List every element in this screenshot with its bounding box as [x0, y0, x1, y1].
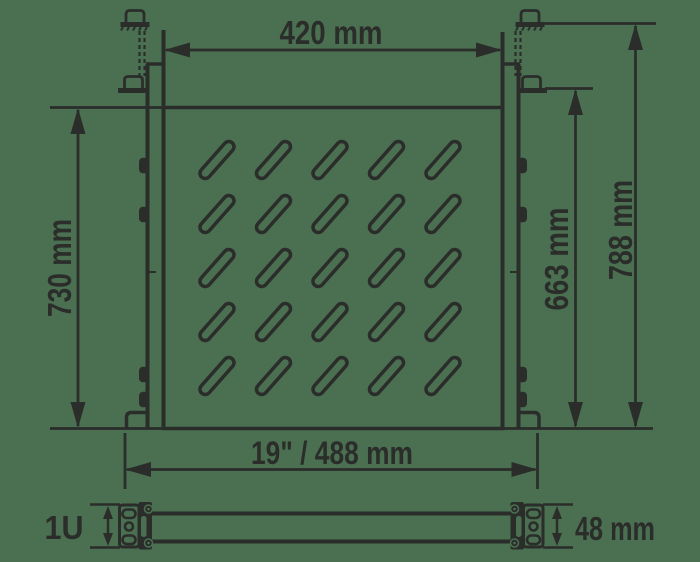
vent-slot	[198, 193, 236, 234]
right-bracket-profile	[524, 505, 544, 547]
vent-slot	[424, 355, 462, 396]
vent-slot	[424, 193, 462, 234]
dimension-label-rack-units: 1U	[45, 509, 84, 546]
bracket-round-hole	[125, 523, 133, 531]
dimension-420: 420 mm	[164, 14, 502, 58]
dimension-1u: 1U	[45, 505, 121, 548]
arrowhead-up-icon	[103, 506, 113, 519]
dimension-label-right-inner-height: 663 mm	[538, 208, 575, 311]
vent-slot	[367, 139, 405, 180]
vent-slot	[254, 301, 292, 342]
vent-slot	[311, 139, 349, 180]
bracket-slot-hole	[527, 510, 540, 519]
vent-slot	[367, 193, 405, 234]
mount-stud	[139, 158, 149, 174]
dimension-730: 730 mm	[41, 108, 86, 428]
vent-slot	[198, 247, 236, 288]
arrowhead-up-icon	[71, 108, 86, 134]
rack-shelf-diagram: 420 mm 730 mm 663 mm 788 mm 19" / 488 mm	[0, 0, 700, 562]
dimension-label-left-height: 730 mm	[41, 219, 78, 317]
vent-slot	[311, 355, 349, 396]
rail-slot	[141, 516, 147, 537]
screw-serration	[121, 27, 147, 31]
screw-flange	[118, 88, 149, 93]
arrowhead-down-icon	[552, 533, 562, 546]
rail-slot	[516, 516, 522, 537]
right-rail-profile	[511, 502, 525, 550]
arrowhead-down-icon	[71, 402, 86, 428]
vent-slot	[311, 193, 349, 234]
vent-slot	[367, 301, 405, 342]
screw-center-dot	[147, 508, 150, 511]
arrowhead-up-icon	[568, 89, 583, 115]
arrowhead-right-icon	[512, 462, 538, 477]
dimension-488: 19" / 488 mm	[125, 433, 538, 489]
arrowhead-down-icon	[628, 402, 643, 428]
screw-center-dot	[147, 542, 150, 545]
top-left-screws	[118, 11, 150, 94]
arrowhead-up-icon	[552, 506, 562, 519]
arrowhead-left-icon	[164, 43, 190, 58]
vent-slot	[367, 247, 405, 288]
vent-slot	[254, 193, 292, 234]
mount-stud	[139, 207, 149, 223]
vent-slot	[424, 247, 462, 288]
vent-slot	[311, 301, 349, 342]
vent-slot	[254, 355, 292, 396]
mount-stud	[518, 207, 528, 223]
arrowhead-left-icon	[125, 462, 151, 477]
bracket-slot-hole	[123, 536, 136, 545]
arrowhead-down-icon	[103, 533, 113, 546]
left-bracket-profile	[120, 505, 140, 547]
screw-serration	[516, 27, 542, 31]
mount-stud	[518, 392, 528, 408]
dimension-label-right-outer-height: 788 mm	[602, 180, 639, 280]
screw-head-icon	[125, 77, 143, 89]
vent-slot	[254, 139, 292, 180]
mount-stud	[518, 158, 528, 174]
mount-stud	[518, 367, 528, 383]
vent-slot	[254, 247, 292, 288]
vent-slot	[198, 301, 236, 342]
dimension-drawing-canvas: 420 mm 730 mm 663 mm 788 mm 19" / 488 mm	[0, 0, 700, 562]
vent-slot-grid	[198, 139, 462, 396]
left-rail-profile	[139, 502, 153, 550]
left-mounting-foot	[127, 413, 148, 429]
arrowhead-right-icon	[476, 43, 502, 58]
right-mounting-foot	[519, 413, 540, 429]
dimension-663: 663 mm	[538, 89, 593, 429]
mount-stud	[139, 367, 149, 383]
screw-center-dot	[513, 542, 516, 545]
vent-slot	[424, 301, 462, 342]
vent-slot	[198, 355, 236, 396]
bracket-slot-hole	[527, 536, 540, 545]
side-profile-view: 1U 48 mm	[45, 502, 656, 550]
dimension-48: 48 mm	[543, 505, 655, 548]
mount-stud	[139, 392, 149, 408]
vent-slot	[198, 139, 236, 180]
vent-slot	[311, 247, 349, 288]
dimension-label-top-width: 420 mm	[280, 14, 383, 51]
screw-flange	[121, 22, 150, 27]
vent-slot	[367, 355, 405, 396]
bracket-round-hole	[530, 523, 538, 531]
arrowhead-down-icon	[568, 402, 583, 428]
vent-slot	[424, 139, 462, 180]
dimension-label-profile-height: 48 mm	[575, 510, 655, 547]
dimension-label-bottom-width: 19" / 488 mm	[251, 435, 413, 471]
arrowhead-up-icon	[628, 24, 643, 50]
screw-flange	[516, 22, 545, 27]
screw-head-icon	[523, 77, 541, 89]
screw-center-dot	[513, 508, 516, 511]
bracket-slot-hole	[123, 510, 136, 519]
screw-flange	[517, 88, 548, 93]
